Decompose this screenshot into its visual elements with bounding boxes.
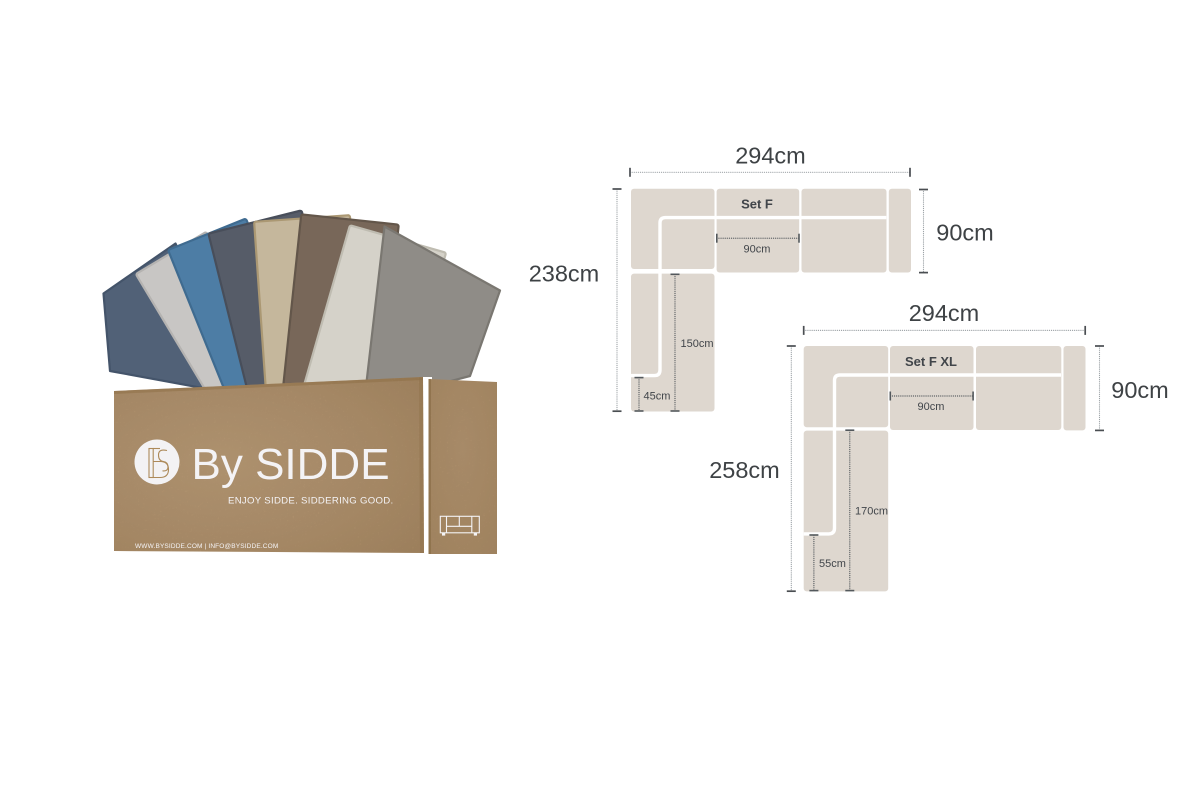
svg-text:Set F XL: Set F XL [905,354,957,369]
svg-text:238cm: 238cm [529,261,600,287]
svg-text:90cm: 90cm [744,244,771,256]
svg-text:45cm: 45cm [644,391,671,403]
svg-text:WWW.BYSIDDE.COM | INFO@BYSIDDE: WWW.BYSIDDE.COM | INFO@BYSIDDE.COM [135,543,278,550]
svg-text:150cm: 150cm [681,338,714,350]
svg-text:By SIDDE: By SIDDE [192,440,390,489]
svg-text:90cm: 90cm [1111,377,1168,403]
svg-text:90cm: 90cm [936,220,993,246]
svg-text:170cm: 170cm [855,506,888,518]
svg-text:55cm: 55cm [819,558,846,570]
svg-text:Set F: Set F [741,197,773,212]
svg-text:ENJOY SIDDE. SIDDERING GOOD.: ENJOY SIDDE. SIDDERING GOOD. [228,496,393,507]
svg-text:294cm: 294cm [909,300,980,326]
svg-text:90cm: 90cm [918,401,945,413]
svg-text:258cm: 258cm [709,457,780,483]
svg-text:294cm: 294cm [735,143,806,169]
